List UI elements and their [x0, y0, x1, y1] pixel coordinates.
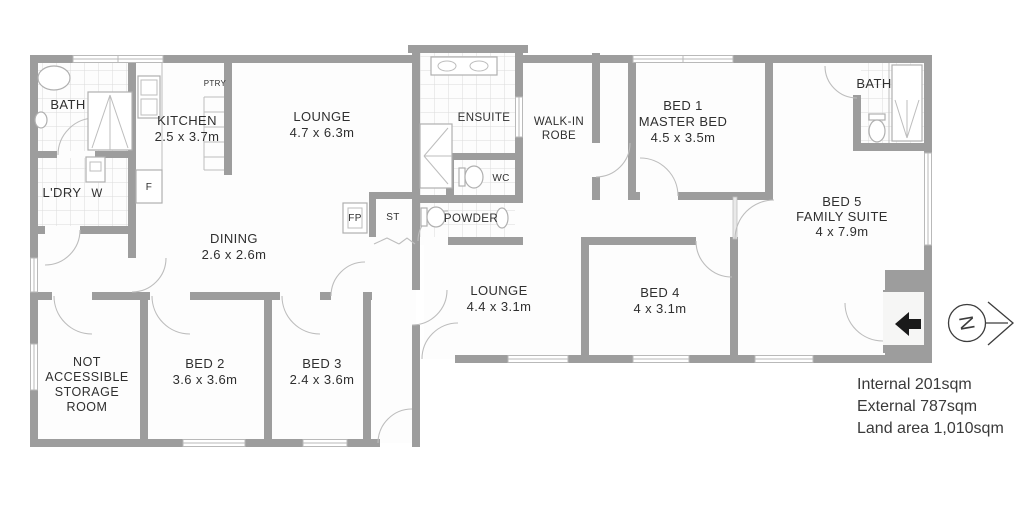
- room-label-walk-in-robe-1: WALK-IN: [534, 116, 584, 128]
- vanity-icon: [431, 57, 497, 75]
- window: [31, 258, 38, 292]
- wall-segment: [448, 237, 523, 245]
- wall-segment: [30, 151, 57, 158]
- room-label-walk-in-robe-2: ROBE: [542, 130, 576, 142]
- room-label-ensuite: ENSUITE: [458, 112, 511, 124]
- shower-icon: [88, 92, 132, 150]
- label-store-cupboard: ST: [386, 212, 399, 223]
- window: [516, 97, 523, 137]
- window: [31, 344, 38, 390]
- room-label-kitchen: KITCHEN: [157, 113, 217, 128]
- wall-segment: [224, 55, 232, 175]
- toilet-icon: [459, 166, 483, 188]
- room-dims-bed2: 3.6 x 3.6m: [173, 372, 238, 387]
- wall-segment: [592, 177, 600, 200]
- wall-segment: [320, 292, 331, 300]
- washing-machine-icon: [86, 157, 105, 182]
- window: [633, 356, 689, 363]
- room-label-laundry: L'DRY: [43, 185, 82, 200]
- room-label-storage-4: ROOM: [67, 400, 108, 414]
- wall-segment: [628, 63, 636, 200]
- window: [183, 440, 245, 447]
- wall-segment: [140, 292, 148, 447]
- room-label-bed5-2: FAMILY SUITE: [796, 209, 888, 224]
- area-land: Land area 1,010sqm: [857, 420, 1004, 437]
- wall-segment: [678, 192, 773, 200]
- wall-segment: [730, 237, 738, 363]
- wall-segment: [408, 45, 528, 53]
- label-washer: W: [91, 188, 102, 200]
- room-dims-bed1: 4.5 x 3.5m: [651, 130, 716, 145]
- room-label-bed5-1: BED 5: [822, 194, 862, 209]
- wall-segment: [592, 53, 600, 143]
- room-label-bed3: BED 3: [302, 356, 342, 371]
- toilet-icon: [869, 114, 885, 142]
- floor-plan: BATH KITCHEN 2.5 x 3.7m PTRY L'DRY W F L…: [0, 0, 1024, 507]
- room-label-bed1-2: MASTER BED: [639, 114, 728, 129]
- wall-segment: [412, 325, 420, 363]
- room-label-storage-2: ACCESSIBLE: [45, 370, 129, 384]
- room-dims-lounge2: 4.4 x 3.1m: [467, 299, 532, 314]
- svg-text:N: N: [954, 314, 978, 332]
- area-external: External 787sqm: [857, 398, 977, 415]
- window: [73, 55, 163, 63]
- window: [303, 440, 347, 447]
- wall-segment: [369, 192, 376, 237]
- room-dims-dining: 2.6 x 2.6m: [202, 247, 267, 262]
- label-fridge: F: [146, 182, 152, 193]
- wall-segment: [412, 45, 420, 290]
- room-label-wc: WC: [492, 173, 509, 184]
- room-dims-bed4: 4 x 3.1m: [633, 301, 686, 316]
- room-label-bed2: BED 2: [185, 356, 225, 371]
- room-label-bed4: BED 4: [640, 285, 680, 300]
- wall-segment: [412, 363, 420, 447]
- room-label-storage-3: STORAGE: [55, 385, 119, 399]
- window: [633, 55, 733, 63]
- wall-segment: [853, 95, 861, 151]
- wall-segment: [80, 226, 136, 234]
- room-label-bath-left: BATH: [50, 97, 85, 112]
- compass-north-glyph: N: [954, 314, 978, 332]
- room-dims-lounge: 4.7 x 6.3m: [290, 125, 355, 140]
- room-label-pantry: PTRY: [204, 79, 227, 88]
- room-label-dining: DINING: [210, 231, 258, 246]
- label-fireplace: FP: [348, 213, 361, 224]
- bathtub-icon: [38, 66, 70, 90]
- window: [925, 153, 932, 245]
- room-dims-bed3: 2.4 x 3.6m: [290, 372, 355, 387]
- shower-icon: [892, 65, 922, 141]
- wall-segment: [515, 53, 523, 97]
- wall-segment: [885, 270, 932, 292]
- wall-segment: [765, 63, 773, 200]
- room-label-bed1-1: BED 1: [663, 98, 703, 113]
- window: [508, 356, 568, 363]
- shower-icon: [420, 124, 452, 188]
- wall-segment: [264, 292, 272, 447]
- wall-segment: [885, 345, 932, 363]
- wall-segment: [515, 137, 523, 203]
- wall-segment: [581, 237, 589, 363]
- kitchen-sink-icon: [138, 76, 160, 118]
- basin-icon: [35, 112, 47, 128]
- wall-segment: [628, 192, 640, 200]
- wall-segment: [853, 143, 932, 151]
- window: [755, 356, 813, 363]
- room-dims-kitchen: 2.5 x 3.7m: [155, 129, 220, 144]
- room-dims-bed5: 4 x 7.9m: [815, 224, 868, 239]
- wall-segment: [30, 226, 45, 234]
- room-label-powder: POWDER: [444, 213, 498, 225]
- wall-segment: [412, 195, 523, 203]
- room-label-lounge2: LOUNGE: [470, 283, 527, 298]
- wall-segment: [363, 292, 371, 447]
- area-summary: Internal 201sqm External 787sqm Land are…: [857, 376, 1004, 437]
- wall-segment: [369, 192, 418, 199]
- room-label-storage-1: NOT: [73, 355, 101, 369]
- room-label-lounge: LOUNGE: [293, 109, 350, 124]
- wall-segment: [30, 292, 52, 300]
- toilet-icon: [421, 207, 445, 227]
- wall-segment: [446, 153, 523, 160]
- area-internal: Internal 201sqm: [857, 376, 972, 393]
- room-label-bath-right: BATH: [856, 76, 891, 91]
- compass: N: [949, 302, 1014, 345]
- wall-segment: [581, 237, 696, 245]
